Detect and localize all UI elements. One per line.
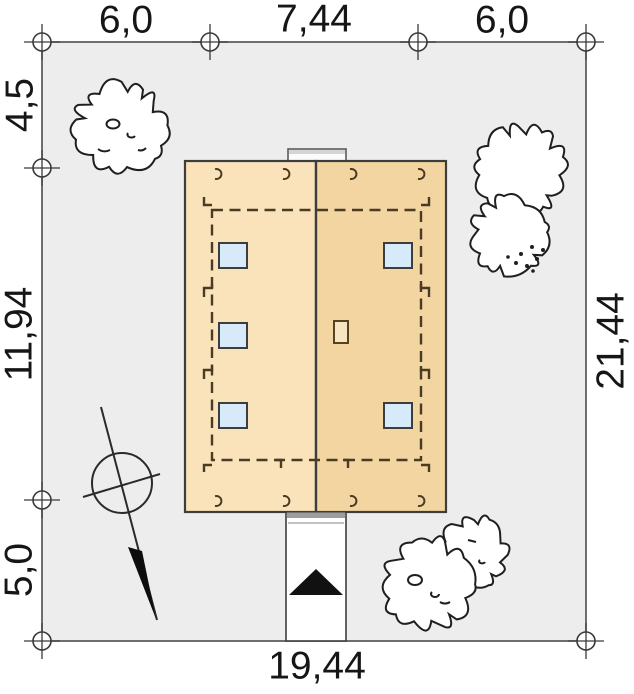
roof-chimney-small <box>334 321 348 343</box>
dim-top-right: 6,0 <box>475 1 529 40</box>
driveway <box>286 512 346 641</box>
dim-top-center: 7,44 <box>276 0 352 39</box>
house-roof <box>185 149 446 512</box>
site-plan: 6,0 7,44 6,0 4,5 11,94 5,0 21,44 19,44 <box>0 0 634 694</box>
skylight-5 <box>384 403 412 428</box>
skylight-3 <box>219 403 247 428</box>
dim-right: 21,44 <box>592 292 631 390</box>
dim-left-lower: 5,0 <box>0 543 39 597</box>
roof-chimney-cap <box>289 150 345 154</box>
skylight-1 <box>219 243 247 268</box>
dim-left-middle: 11,94 <box>0 287 39 382</box>
skylight-4 <box>384 243 412 268</box>
driveway-threshold <box>287 513 345 519</box>
skylight-2 <box>219 323 247 348</box>
dim-bottom: 19,44 <box>268 647 366 686</box>
dim-left-upper: 4,5 <box>1 78 40 132</box>
site-plan-drawing <box>0 0 634 694</box>
dim-top-left: 6,0 <box>99 1 153 40</box>
